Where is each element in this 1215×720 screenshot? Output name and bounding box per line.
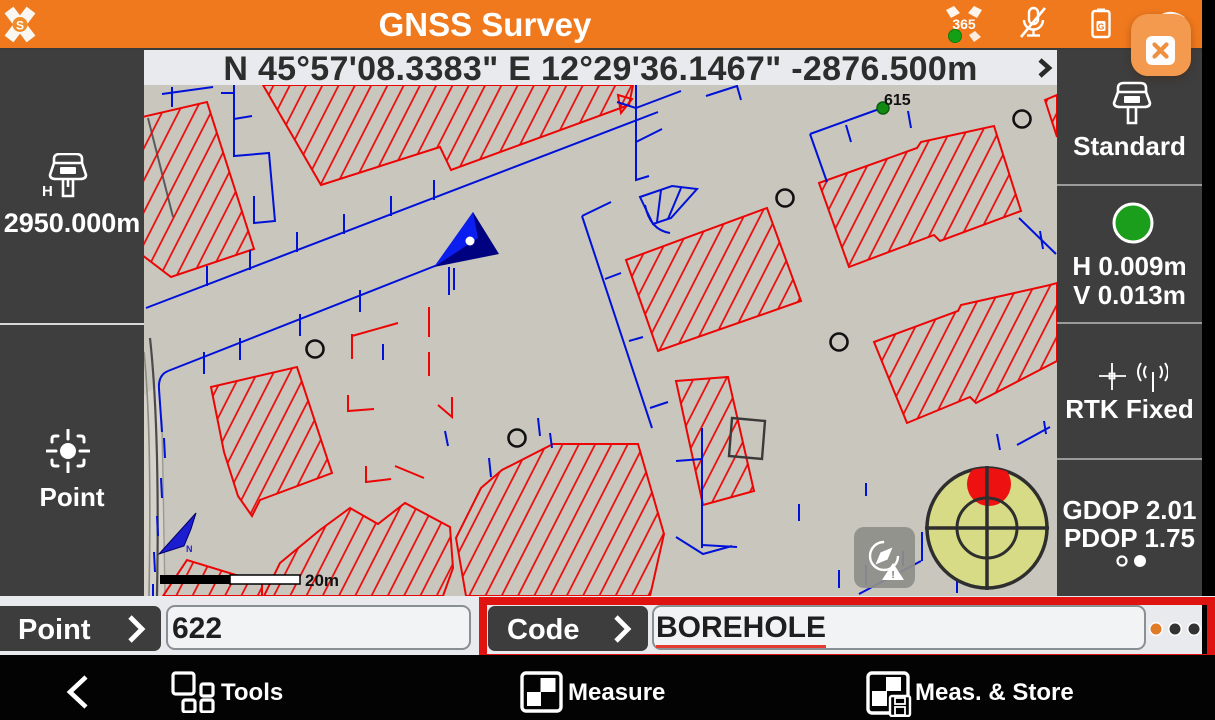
- svg-text:!: !: [891, 570, 894, 581]
- svg-text:G: G: [1098, 22, 1105, 32]
- svg-text:N: N: [186, 544, 193, 554]
- svg-text:615: 615: [884, 92, 911, 109]
- svg-text:20m: 20m: [305, 571, 339, 590]
- svg-text:S: S: [16, 19, 24, 33]
